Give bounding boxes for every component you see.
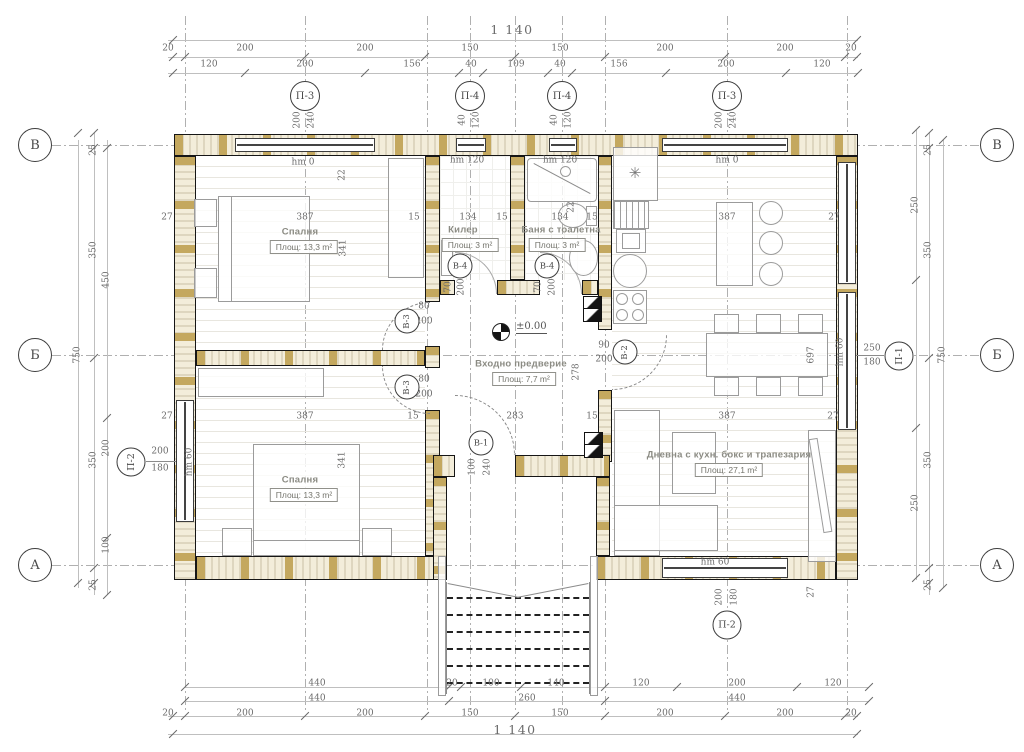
bar-stool xyxy=(759,231,783,255)
dim-label: 120 xyxy=(632,680,649,689)
dim-label: 750 xyxy=(939,346,948,363)
kitchen-sink-square-basin xyxy=(622,233,640,249)
dim-label: 200 xyxy=(458,278,467,295)
dim-label: 200 xyxy=(595,356,612,365)
row-axis-marker: Б xyxy=(980,338,1014,372)
dim-label: 350 xyxy=(90,241,99,258)
window-marker: П-2 xyxy=(713,611,742,640)
door-marker: В-3 xyxy=(395,375,420,400)
dim-label: 109 xyxy=(507,61,524,70)
dim-label: 140 xyxy=(547,680,564,689)
dim-label: 200 xyxy=(103,439,112,456)
stair-tread xyxy=(447,614,589,616)
dim-label: 750 xyxy=(74,346,83,363)
door-marker: В-4 xyxy=(535,254,560,279)
dim-label: 40 xyxy=(551,114,560,125)
room-area-box: Площ: 3 m² xyxy=(442,238,499,252)
room-name: Спалня xyxy=(282,227,318,238)
dim-label: 100 xyxy=(482,680,499,689)
window-kitchen-top xyxy=(662,138,788,152)
dim-label: 20 xyxy=(162,710,173,719)
bed-headboard-top xyxy=(218,196,232,302)
dim-label: 100 xyxy=(103,536,112,553)
dim-label: 15 xyxy=(586,214,597,223)
dim-label: 250 xyxy=(912,196,921,213)
dim-label: 80 xyxy=(418,376,429,385)
dim-label: hm 0 xyxy=(292,159,315,168)
dim-label: 240 xyxy=(730,111,739,128)
dim-label: 134 xyxy=(551,214,568,223)
leader-line xyxy=(856,355,884,356)
dim-label: 278 xyxy=(573,363,582,380)
dim-label: 200 xyxy=(356,710,373,719)
column-axis-marker: П-4 xyxy=(547,81,577,111)
dim-label: 283 xyxy=(506,413,523,422)
dim-label: 22 xyxy=(339,169,348,180)
dim-label: 15 xyxy=(407,413,418,422)
dim-label: 120 xyxy=(813,61,830,70)
row-axis-marker: В xyxy=(980,128,1014,162)
room-area-box: Площ: 7,7 m² xyxy=(492,372,556,386)
dim-label: 200 xyxy=(656,710,673,719)
dim-label: 440 xyxy=(308,680,325,689)
dim-label: 40 xyxy=(459,114,468,125)
stove-burner xyxy=(632,293,644,305)
fridge-snowflake-icon: ✳ xyxy=(629,164,642,182)
room-area-box: Площ: 13,3 m² xyxy=(270,240,338,254)
dim-label: 134 xyxy=(459,214,476,223)
stair-rail-left xyxy=(438,556,446,696)
stair-tread xyxy=(447,665,589,667)
elevation-marker-icon xyxy=(492,323,510,341)
dim-label: 25 xyxy=(925,144,934,155)
elevation-label: ±0.00 xyxy=(516,321,547,334)
stair-tread xyxy=(447,682,589,684)
dim-label: 240 xyxy=(308,111,317,128)
dim-label: hm 60 xyxy=(701,559,730,568)
dining-chair xyxy=(756,377,781,396)
dim-label: 250 xyxy=(863,345,880,354)
dim-label: hm 120 xyxy=(450,157,484,166)
dim-label: 387 xyxy=(296,413,313,422)
stair-side-right xyxy=(589,582,590,694)
dim-label: 240 xyxy=(484,458,493,475)
nightstand xyxy=(194,199,217,227)
dim-label: 120 xyxy=(473,111,482,128)
dim-label: 180 xyxy=(731,588,740,605)
dim-label: 40 xyxy=(465,61,476,70)
bed-footboard-bottom xyxy=(253,540,360,556)
dim-label: 200 xyxy=(656,45,673,54)
sofa-chaise xyxy=(614,505,718,551)
window-marker: П-1 xyxy=(885,342,914,371)
bar-stool xyxy=(759,201,783,225)
dim-label: 150 xyxy=(551,710,568,719)
dim-label: 20 xyxy=(446,680,457,689)
column-axis-marker: П-3 xyxy=(712,81,742,111)
row-axis-marker: Б xyxy=(18,338,52,372)
dim-label: hm 120 xyxy=(543,157,577,166)
dim-label: 70 xyxy=(445,281,454,292)
stove-burner xyxy=(632,309,644,321)
dim-label: 200 xyxy=(716,111,725,128)
dim-label: hm 0 xyxy=(716,157,739,166)
bar-stool xyxy=(759,262,783,286)
dim-label: 22 xyxy=(568,201,577,212)
column-axis-marker: П-4 xyxy=(455,81,485,111)
dim-label: 387 xyxy=(296,214,313,223)
nightstand xyxy=(362,528,392,556)
dim-label: 387 xyxy=(718,214,735,223)
dim-label: 1 140 xyxy=(490,24,533,37)
leader-line xyxy=(146,461,176,462)
dim-label: hm 60 xyxy=(186,448,195,477)
stove-burner xyxy=(616,293,628,305)
room-area-box: Площ: 13,3 m² xyxy=(270,488,338,502)
dim-label: 156 xyxy=(610,61,627,70)
dim-label: 25 xyxy=(90,579,99,590)
vent-duct-hall xyxy=(584,432,603,458)
dim-label: 150 xyxy=(461,710,478,719)
dim-label: 200 xyxy=(294,111,303,128)
dim-label: 150 xyxy=(461,45,478,54)
room-name: Дневна с кухн. бокс и трапезария xyxy=(647,450,812,461)
room-name: Входно предверие xyxy=(475,359,567,370)
window-marker: П-2 xyxy=(117,448,146,477)
door-marker: В-1 xyxy=(469,431,494,456)
dining-chair xyxy=(714,314,739,333)
dim-label: 350 xyxy=(925,451,934,468)
nightstand xyxy=(222,528,252,556)
door-marker: В-3 xyxy=(395,309,420,334)
dim-label: 15 xyxy=(496,214,507,223)
row-axis-marker: В xyxy=(18,128,52,162)
dim-label: 40 xyxy=(554,61,565,70)
room-area-box: Площ: 27,1 m² xyxy=(695,463,763,477)
dim-label: 180 xyxy=(863,359,880,368)
dim-label: 27 xyxy=(161,214,172,223)
dim-label: 120 xyxy=(565,111,574,128)
dim-label: 25 xyxy=(90,144,99,155)
dim-label: 200 xyxy=(296,61,313,70)
dim-label: 120 xyxy=(200,61,217,70)
dining-chair xyxy=(756,314,781,333)
dim-label: 80 xyxy=(418,303,429,312)
dining-chair xyxy=(798,377,823,396)
dim-label: 200 xyxy=(549,278,558,295)
dim-label: 90 xyxy=(598,342,609,351)
dim-label: 200 xyxy=(717,61,734,70)
vent-duct-bath xyxy=(583,296,602,322)
room-name: Килер xyxy=(448,225,478,236)
row-axis-marker: А xyxy=(980,548,1014,582)
dim-label: hm 60 xyxy=(837,338,846,367)
kitchen-counter xyxy=(613,201,649,229)
dim-label: 1 140 xyxy=(493,724,536,737)
dim-label: 200 xyxy=(716,588,725,605)
dim-label: 387 xyxy=(718,413,735,422)
shower-drain xyxy=(560,166,571,177)
dim-label: 341 xyxy=(340,239,349,256)
dim-label: 350 xyxy=(90,451,99,468)
dim-label: 250 xyxy=(912,494,921,511)
dim-label: 20 xyxy=(845,710,856,719)
stair-tread xyxy=(447,631,589,633)
dim-label: 120 xyxy=(824,680,841,689)
room-area-box: Площ: 3 m² xyxy=(529,238,586,252)
stair-rail-right xyxy=(590,556,598,696)
dim-label: 156 xyxy=(403,61,420,70)
dim-label: 697 xyxy=(808,346,817,363)
dim-label: 200 xyxy=(236,710,253,719)
wardrobe-bedroom2 xyxy=(198,368,324,397)
dim-label: 70 xyxy=(535,281,544,292)
row-axis-marker: А xyxy=(18,548,52,582)
room-name: Спалня xyxy=(282,475,318,486)
dim-label: 15 xyxy=(408,214,419,223)
dim-label: 180 xyxy=(151,465,168,474)
window-pantry xyxy=(456,138,486,152)
door-marker: В-4 xyxy=(448,254,473,279)
dim-label: 27 xyxy=(828,214,839,223)
column-axis-marker: П-3 xyxy=(290,81,320,111)
nightstand xyxy=(194,268,217,298)
dim-label: 341 xyxy=(339,451,348,468)
dim-label: 200 xyxy=(356,45,373,54)
floor-plan-canvas[interactable]: ✳ xyxy=(0,0,1024,752)
dim-label: 27 xyxy=(808,586,817,597)
dim-label: 15 xyxy=(586,413,597,422)
dim-label: 200 xyxy=(236,45,253,54)
dim-label: 25 xyxy=(925,579,934,590)
window-bedroom1-top xyxy=(235,138,375,152)
dim-label: 200 xyxy=(151,448,168,457)
window-right-upper xyxy=(838,162,856,284)
dim-label: 440 xyxy=(728,695,745,704)
dim-label: 20 xyxy=(845,45,856,54)
window-bath xyxy=(549,138,577,152)
dim-label: 440 xyxy=(308,695,325,704)
dim-label: 260 xyxy=(518,695,535,704)
dim-label: 100 xyxy=(469,458,478,475)
room-name: Баня с тоалетна xyxy=(521,225,600,236)
dim-label: 27 xyxy=(827,413,838,422)
dim-label: 450 xyxy=(103,271,112,288)
dim-label: 200 xyxy=(728,680,745,689)
dim-label: 27 xyxy=(161,413,172,422)
dim-label: 200 xyxy=(776,710,793,719)
dining-chair xyxy=(798,314,823,333)
kitchen-sink-round xyxy=(613,254,647,288)
dim-label: 150 xyxy=(551,45,568,54)
dim-label: 20 xyxy=(162,45,173,54)
stair-tread xyxy=(447,648,589,650)
dining-chair xyxy=(714,377,739,396)
dim-label: 200 xyxy=(776,45,793,54)
door-marker: В-2 xyxy=(613,340,638,365)
stove-burner xyxy=(616,309,628,321)
dim-label: 350 xyxy=(925,241,934,258)
